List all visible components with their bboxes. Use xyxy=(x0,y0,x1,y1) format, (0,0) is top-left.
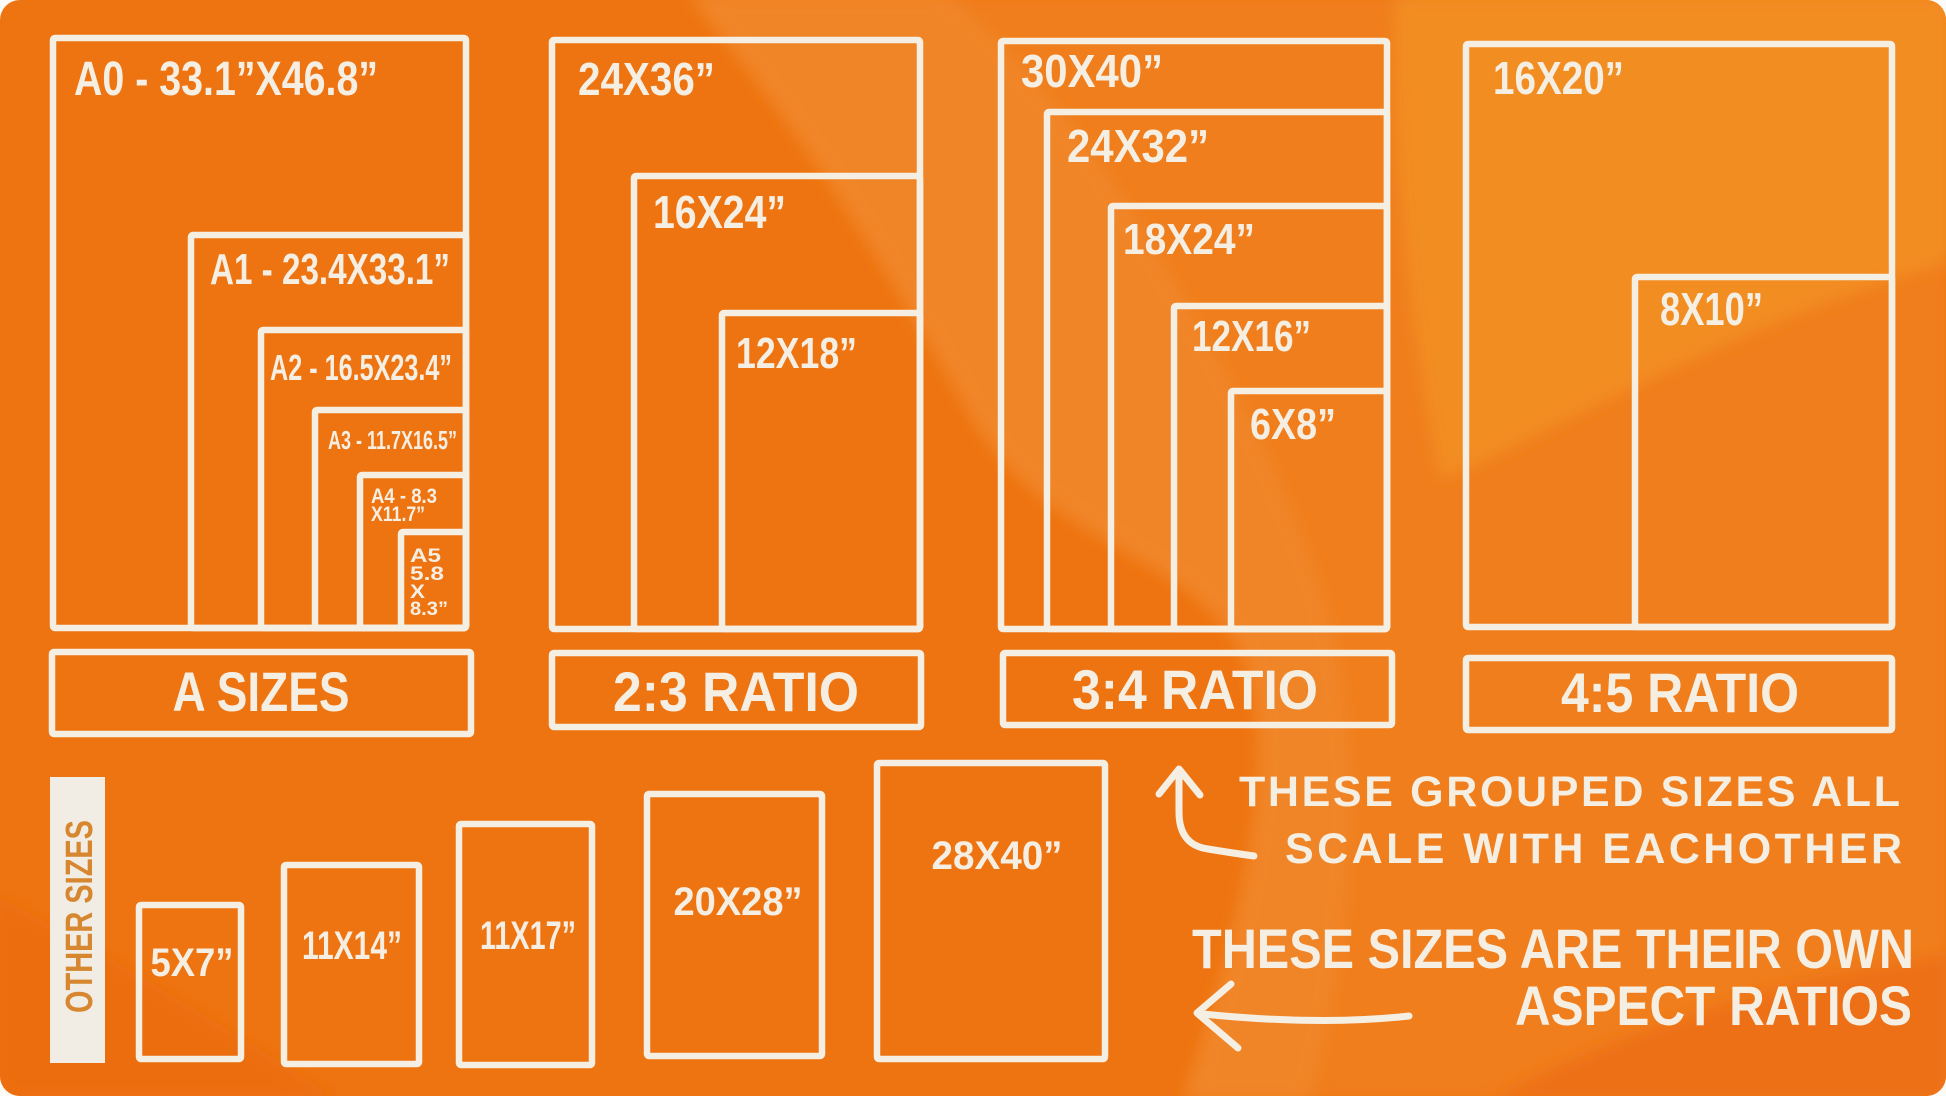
svg-text:OTHER SIZES: OTHER SIZES xyxy=(59,820,101,1013)
svg-text:20X28”: 20X28” xyxy=(674,880,803,924)
svg-text:THESE SIZES ARE THEIR OWN: THESE SIZES ARE THEIR OWN xyxy=(1192,917,1914,980)
svg-text:18X24”: 18X24” xyxy=(1123,215,1255,264)
svg-text:A0 - 33.1”X46.8”: A0 - 33.1”X46.8” xyxy=(74,53,378,106)
svg-text:12X16”: 12X16” xyxy=(1192,312,1311,361)
svg-text:24X36”: 24X36” xyxy=(578,53,715,105)
svg-text:28X40”: 28X40” xyxy=(932,834,1063,878)
svg-text:THESE GROUPED SIZES ALL: THESE GROUPED SIZES ALL xyxy=(1239,768,1900,816)
svg-text:A3 - 11.7X16.5”: A3 - 11.7X16.5” xyxy=(328,425,457,455)
svg-text:8.3”: 8.3” xyxy=(410,599,448,620)
svg-text:16X24”: 16X24” xyxy=(653,186,786,238)
svg-text:24X32”: 24X32” xyxy=(1067,120,1209,172)
svg-text:A1 - 23.4X33.1”: A1 - 23.4X33.1” xyxy=(210,245,450,294)
svg-text:SCALE WITH EACHOTHER: SCALE WITH EACHOTHER xyxy=(1285,825,1902,873)
svg-text:8X10”: 8X10” xyxy=(1660,283,1763,335)
svg-text:2:3 RATIO: 2:3 RATIO xyxy=(613,660,859,723)
svg-text:ASPECT RATIOS: ASPECT RATIOS xyxy=(1515,974,1912,1037)
svg-text:12X18”: 12X18” xyxy=(736,329,857,378)
svg-text:11X14”: 11X14” xyxy=(302,924,402,968)
svg-text:16X20”: 16X20” xyxy=(1493,52,1624,104)
svg-text:11X17”: 11X17” xyxy=(480,914,576,958)
svg-text:6X8”: 6X8” xyxy=(1250,400,1336,449)
svg-text:A2 - 16.5X23.4”: A2 - 16.5X23.4” xyxy=(270,347,452,388)
svg-text:4:5 RATIO: 4:5 RATIO xyxy=(1561,661,1799,724)
svg-text:30X40”: 30X40” xyxy=(1021,45,1163,97)
svg-text:3:4 RATIO: 3:4 RATIO xyxy=(1072,658,1318,721)
svg-text:5X7”: 5X7” xyxy=(151,941,234,985)
svg-text:X11.7”: X11.7” xyxy=(371,503,425,526)
svg-text:A SIZES: A SIZES xyxy=(173,660,350,723)
